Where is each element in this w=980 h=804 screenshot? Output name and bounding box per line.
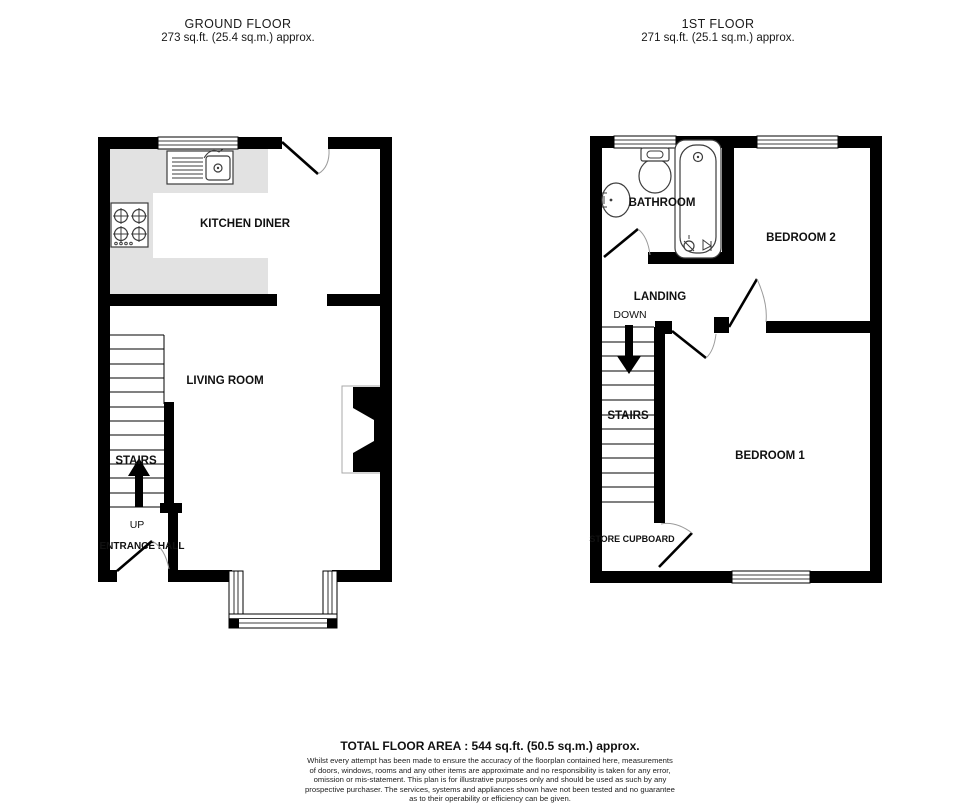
toilet-icon	[639, 148, 671, 193]
ground-stairs	[110, 335, 164, 507]
bedroom1-label: BEDROOM 1	[735, 450, 805, 462]
footer: TOTAL FLOOR AREA : 544 sq.ft. (50.5 sq.m…	[0, 739, 980, 804]
disclaimer: Whilst every attempt has been made to en…	[0, 756, 980, 804]
down-label: DOWN	[613, 309, 646, 321]
fireplace-icon	[342, 386, 382, 473]
ground-floor-plan: KITCHEN DINER LIVING ROOM STAIRS UP ENTR…	[98, 137, 392, 628]
bathroom-door-icon	[604, 229, 650, 257]
floorplan-page: GROUND FLOOR 273 sq.ft. (25.4 sq.m.) app…	[0, 0, 980, 804]
first-stairs-label: STAIRS	[607, 410, 649, 422]
basin-icon	[602, 183, 630, 217]
disclaimer-line: as to their operability or efficiency ca…	[0, 794, 980, 804]
kitchen-diner-label: KITCHEN DINER	[200, 218, 291, 230]
bay-window-icon	[229, 571, 337, 628]
total-floor-area: TOTAL FLOOR AREA : 544 sq.ft. (50.5 sq.m…	[0, 739, 980, 753]
down-arrow-icon	[617, 325, 641, 374]
up-label: UP	[130, 519, 145, 531]
bedroom2-label: BEDROOM 2	[766, 232, 836, 244]
floorplan-drawing: KITCHEN DINER LIVING ROOM STAIRS UP ENTR…	[0, 0, 980, 804]
first-floor-plan: BATHROOM BEDROOM 2 LANDING DOWN STAIRS B…	[589, 136, 882, 583]
disclaimer-line: Whilst every attempt has been made to en…	[0, 756, 980, 766]
disclaimer-line: prospective purchaser. The services, sys…	[0, 785, 980, 795]
landing-label: LANDING	[634, 291, 686, 303]
store-cupboard-label: STORE CUPBOARD	[589, 534, 675, 544]
bathroom-label: BATHROOM	[629, 197, 696, 209]
bedroom2-door-icon	[729, 279, 766, 327]
living-room-label: LIVING ROOM	[186, 375, 263, 387]
kitchen-window-icon	[158, 137, 238, 149]
bathroom-window-icon	[614, 136, 676, 148]
store-cupboard-door-icon	[659, 523, 692, 567]
bedroom1-window-icon	[732, 571, 810, 583]
bedroom2-window-icon	[757, 136, 838, 148]
kitchen-back-door-icon	[282, 142, 329, 174]
kitchen-hob-icon	[111, 203, 148, 247]
bedroom1-door-icon	[672, 331, 716, 358]
ground-stairs-label: STAIRS	[115, 455, 157, 467]
disclaimer-line: omission or mis-statement. This plan is …	[0, 775, 980, 785]
kitchen-sink-icon	[167, 149, 233, 184]
disclaimer-line: of doors, windows, rooms and any other i…	[0, 766, 980, 776]
